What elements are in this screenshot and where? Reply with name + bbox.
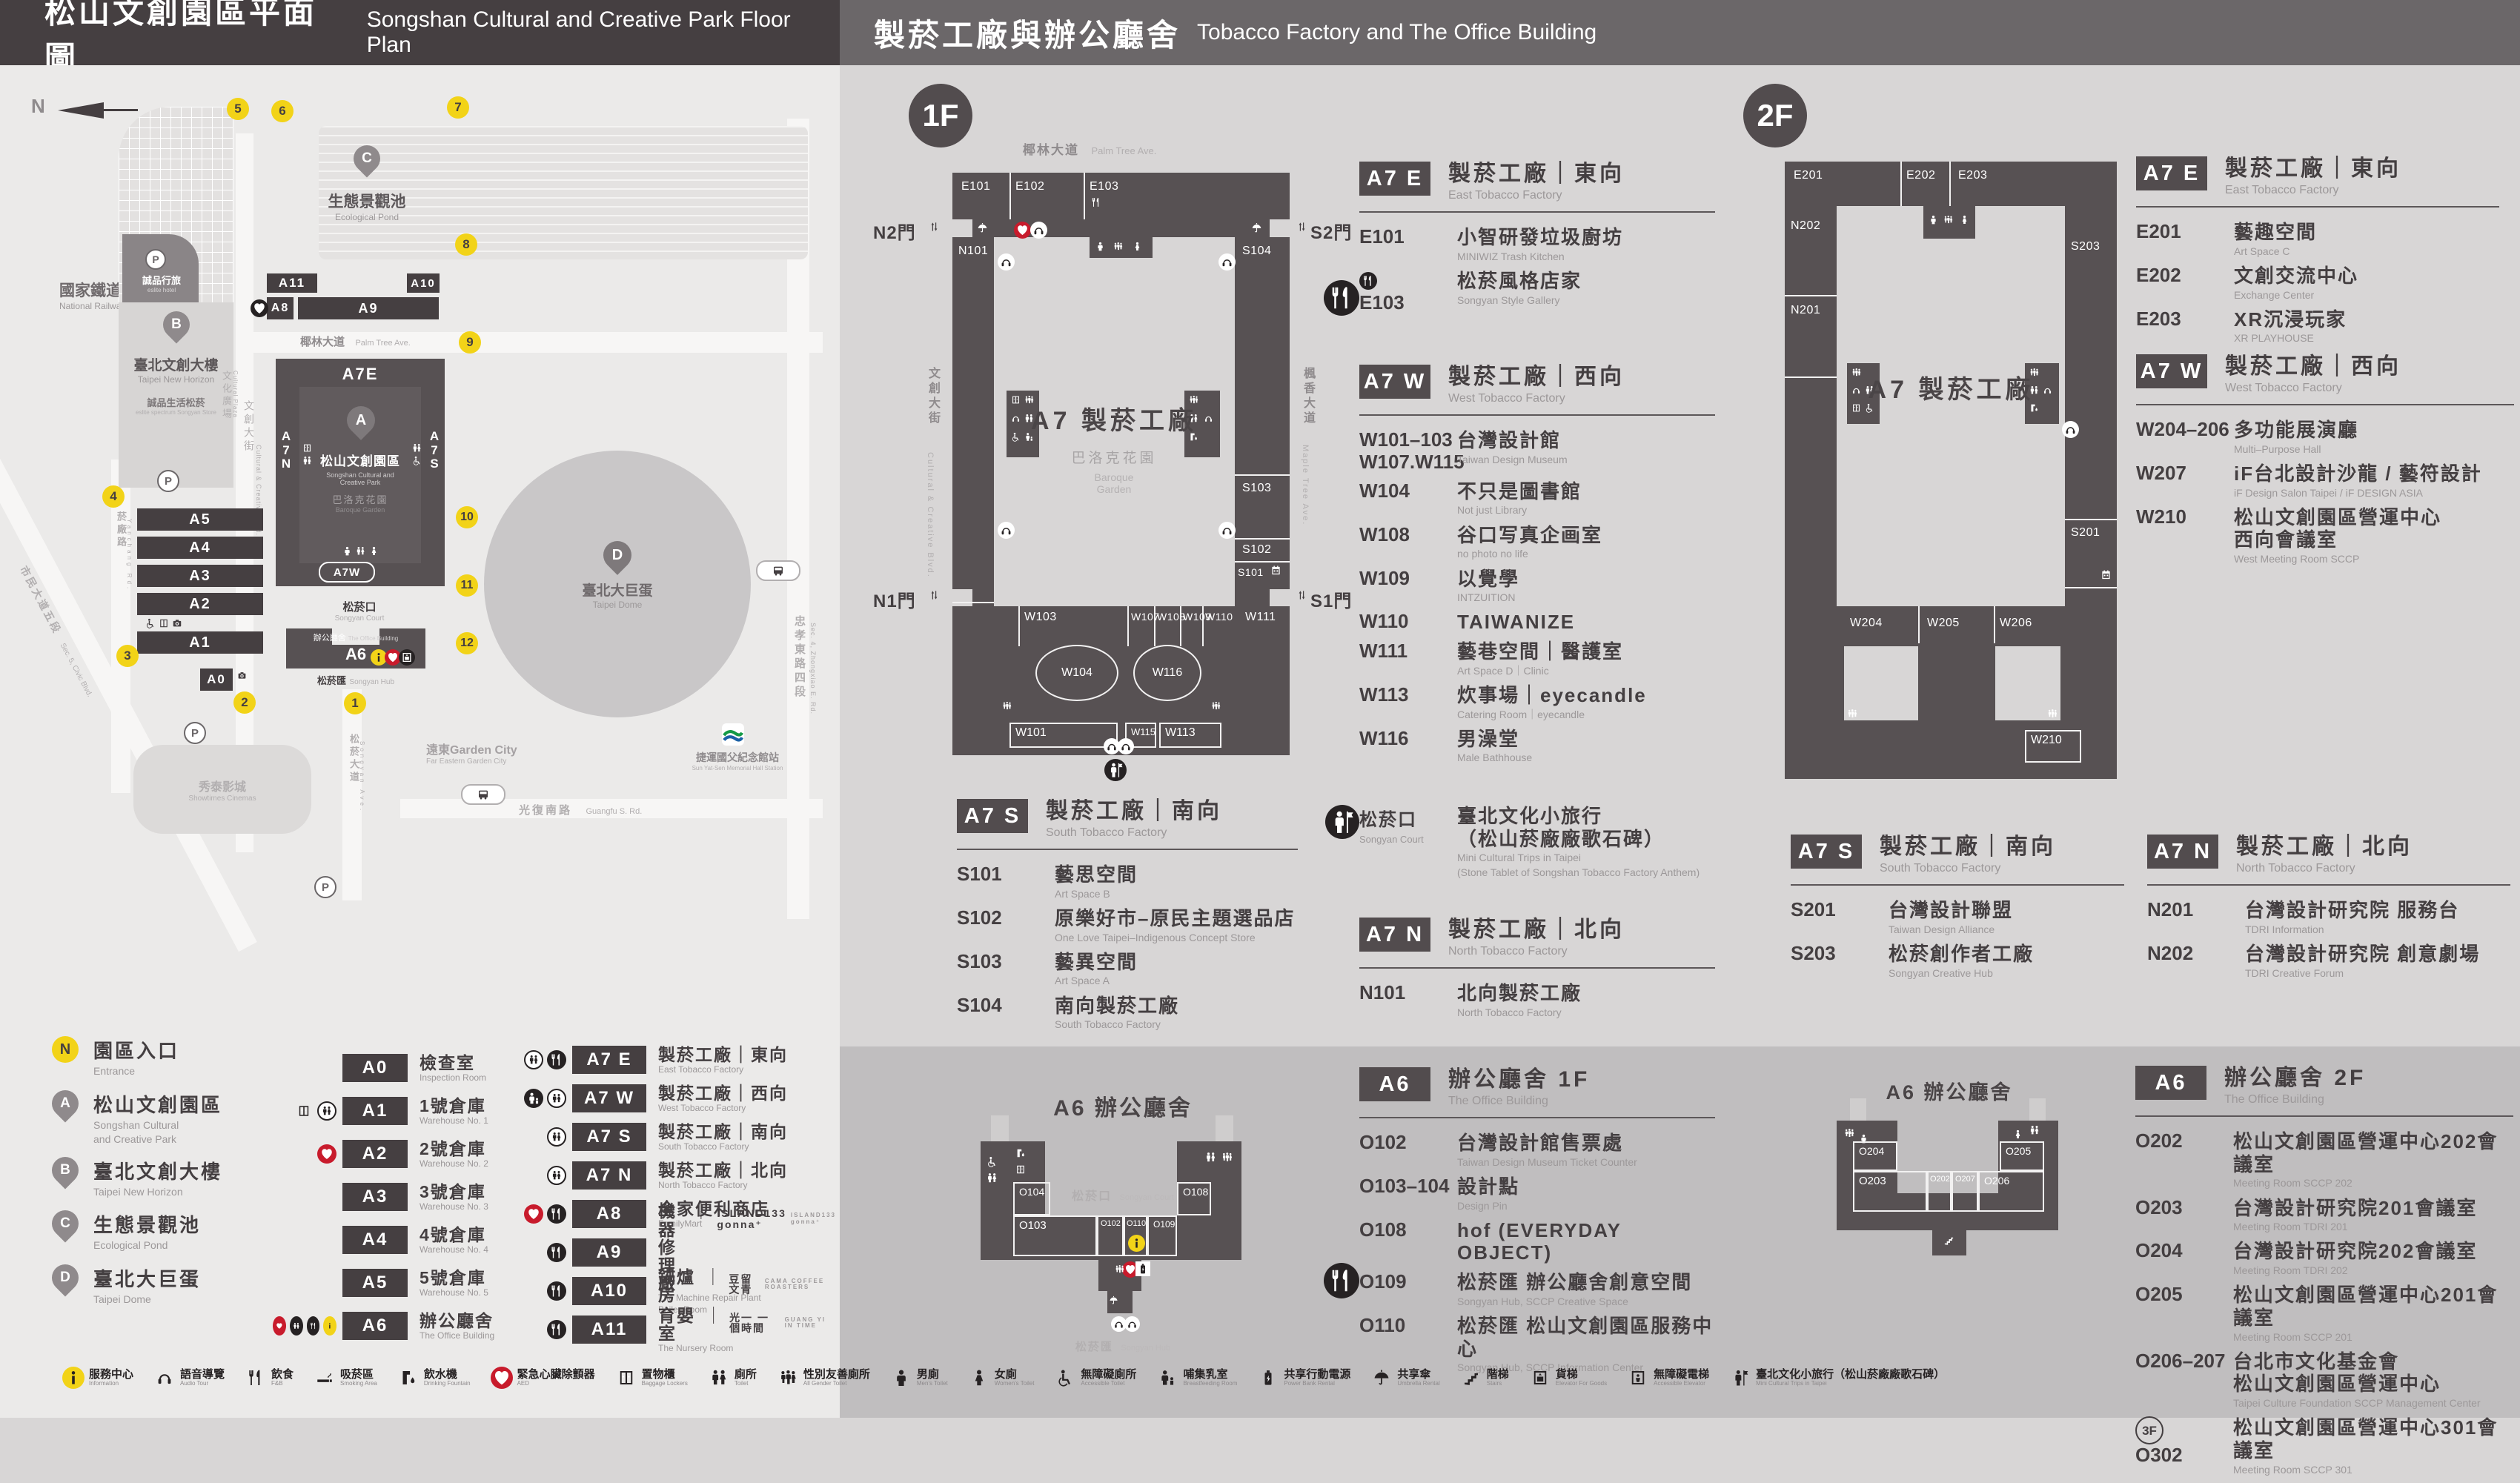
palm-ave-label: 椰林大道 Palm Tree Ave. — [300, 334, 411, 349]
room-w110: W110 — [1205, 611, 1233, 623]
list-item: W116 男澡堂 Male Bathhouse — [1359, 728, 1715, 765]
aed-icon — [524, 1204, 543, 1224]
list-item: S103 藝異空間 Art Space A — [957, 951, 1298, 988]
divider — [1084, 173, 1085, 219]
yanchang-en: Yanchang Rd. — [126, 519, 133, 591]
legend-venue: A11 育嬰室 ｜ 光一 一個時間 GUANG YI IN TIME The N… — [513, 1310, 836, 1349]
audio-tour-icon — [1118, 738, 1134, 754]
a6-1f-map-title: A6 辦公廳舍 — [1030, 1089, 1216, 1122]
bus-stop-icon — [756, 560, 800, 581]
room-w104: W104 — [1035, 645, 1118, 701]
section-badge: A7 N — [1359, 918, 1430, 952]
legend-building: A1 1號倉庫 Warehouse No. 1 — [273, 1089, 517, 1132]
all-gender-icon — [1115, 1264, 1124, 1274]
section-a6-1f: A6 辦公廳舍 1FThe Office Building O102 台灣設計館… — [1359, 1067, 1715, 1381]
audio-tour-icon — [2043, 385, 2052, 395]
section-f2-east: A7 E 製菸工廠｜東向East Tobacco Factory E201 藝趣… — [2136, 156, 2499, 352]
legend-facility: 緊急心臟除顫器 AED — [491, 1367, 595, 1389]
mens-icon — [1095, 242, 1105, 251]
divider — [1994, 606, 1995, 643]
womens-icon — [369, 546, 379, 556]
entrance-4: 4 — [102, 485, 125, 508]
nursing-icon — [1156, 1367, 1178, 1389]
room-e203: E203 — [1958, 169, 1987, 182]
section-badge: A7 S — [957, 799, 1028, 833]
toilet-icon — [547, 1127, 566, 1147]
food-icon — [307, 1316, 320, 1336]
mrt-label: 捷運國父紀念館站 Sun Yat-Sen Memorial Hall Stati… — [667, 750, 808, 772]
legend-venue: A9 機器修理廠 ｜ ISLAND133 gonna⁺ ISLAND133 go… — [513, 1233, 836, 1272]
aed-icon — [273, 1316, 286, 1336]
room-o204: O204 — [1853, 1141, 1897, 1171]
locker-icon — [302, 443, 312, 453]
map-hub-label: 松菸匯 Songyan Hub — [311, 673, 400, 688]
mrt-icon — [722, 723, 744, 746]
aed-icon — [317, 1144, 336, 1164]
section-badge: A7 N — [2147, 835, 2218, 869]
toilet-icon — [1865, 385, 1874, 395]
bldg-a3: A3 — [137, 565, 263, 587]
room-o104: O104 — [1013, 1182, 1050, 1215]
divider — [1949, 162, 1951, 206]
gate-s2: S2門 — [1310, 218, 1352, 244]
room-n202: N202 — [1791, 219, 1820, 233]
accessible-icon — [1011, 432, 1021, 442]
section-badge: A7 E — [2136, 156, 2207, 190]
room-o205: O205 — [2000, 1141, 2044, 1171]
fountain-icon — [1015, 1148, 1026, 1158]
room-w116: W116 — [1133, 645, 1201, 701]
legend-buildings: A0 檢查室 Inspection Room A1 1號倉庫 Warehouse… — [273, 1046, 517, 1347]
list-item: O206–207 台北市文化基金會 松山文創園區營運中心 Taipei Cult… — [2135, 1350, 2513, 1410]
section-f1-west: A7 W 製菸工廠｜西向West Tobacco Factory W101–10… — [1359, 365, 1715, 772]
food-icon — [547, 1243, 566, 1262]
divider — [1235, 561, 1290, 563]
toilet-icon — [524, 1050, 543, 1069]
toilet-icon — [708, 1367, 730, 1389]
section-f2-north: A7 N 製菸工廠｜北向North Tobacco Factory N201 台… — [2147, 835, 2510, 986]
divider — [1018, 606, 1020, 646]
room-w206: W206 — [2000, 617, 2032, 630]
accessible-icon — [412, 456, 422, 465]
list-item: O203 台灣設計研究院201會議室 Meeting Room TDRI 201 — [2135, 1197, 2513, 1234]
a6-2f-map-title: A6 辦公廳舍 — [1860, 1076, 2038, 1105]
list-item: O110 松菸匯 松山文創園區服務中心 Songyan Hub, SCCP In… — [1359, 1315, 1715, 1375]
info-icon — [323, 1316, 336, 1336]
entrance-8: 8 — [455, 233, 477, 256]
mens-icon — [1929, 215, 1938, 225]
room-n101: N101 — [958, 245, 988, 258]
legend-facility: 吸菸區 Smoking Area — [314, 1367, 377, 1389]
bldg-a2: A2 — [137, 593, 263, 615]
umbrella-icon — [977, 222, 988, 233]
map-court-label: 松菸口 Songyan Court — [319, 599, 400, 623]
food-icon — [245, 1367, 267, 1389]
toilet-icon — [290, 1316, 303, 1336]
entrance-12: 12 — [456, 632, 478, 654]
legend-facility: 男廁 Men's Toilet — [890, 1367, 948, 1389]
pin-b: B — [47, 1151, 84, 1189]
accessible-icon — [987, 1156, 998, 1167]
cultural-plaza-en: Cultural Plaza — [232, 371, 239, 418]
list-item: O205 松山文創園區營運中心201會議室 Meeting Room SCCP … — [2135, 1284, 2513, 1344]
locker-icon — [159, 618, 169, 628]
section-a6-2f: A6 辦公廳舍 2FThe Office Building O202 松山文創園… — [2135, 1066, 2513, 1483]
updown-arrows-icon — [1296, 221, 1307, 233]
divider — [1127, 606, 1129, 646]
locker-icon — [615, 1367, 637, 1389]
room-e202: E202 — [1906, 169, 1935, 182]
bldg-a8: A8 — [267, 297, 294, 319]
locker-icon — [1011, 395, 1021, 405]
legend-place: C 生態景觀池 Ecological Pond — [52, 1210, 274, 1254]
aed-icon — [1014, 222, 1031, 239]
floor1-badge: 1F — [909, 84, 972, 147]
north-label: N — [31, 95, 45, 118]
audio-tour-icon — [1218, 522, 1236, 539]
pin-d: D — [47, 1258, 84, 1296]
all-gender-icon — [1943, 215, 1953, 225]
entrance-10: 10 — [456, 506, 478, 528]
womens-icon — [968, 1367, 990, 1389]
a6f1-hub-label: 松菸匯 Songyan Hub — [1052, 1338, 1193, 1354]
list-item: O204 台灣設計研究院202會議室 Meeting Room TDRI 202 — [2135, 1240, 2513, 1277]
list-item: W210 松山文創園區營運中心 西向會議室 West Meeting Room … — [2136, 506, 2514, 566]
list-item: W110 TAIWANIZE — [1359, 611, 1715, 634]
legend-facility: 置物櫃 Baggage Lockers — [615, 1367, 688, 1389]
toilet-icon — [356, 546, 365, 556]
pond-label: 生態景觀池 Ecological Pond — [304, 190, 430, 222]
updown-arrows-icon — [928, 221, 940, 233]
divider — [1785, 376, 1837, 378]
entrance-marker: N — [52, 1036, 79, 1063]
legend-building: A4 4號倉庫 Warehouse No. 4 — [273, 1218, 517, 1261]
f1-gate-n2-gap — [952, 219, 972, 237]
divider — [1900, 162, 1902, 206]
divider — [1785, 295, 1837, 296]
f1-gate-s2-gap — [1270, 219, 1290, 237]
food-icon — [547, 1050, 566, 1069]
bldg-a1: A1 — [137, 631, 263, 654]
nursing-icon — [1024, 432, 1034, 442]
entrance-2: 2 — [233, 691, 256, 714]
list-item: O202 松山文創園區營運中心202會議室 Meeting Room SCCP … — [2135, 1130, 2513, 1190]
accessible-icon — [1054, 1367, 1076, 1389]
facility-legend: 服務中心 Information 語音導覽 Audio Tour 飲食 F&B … — [62, 1367, 1945, 1389]
food-icon — [1359, 272, 1377, 290]
map-park-label: 松山文創園區 Songshan Cultural and Creative Pa… — [294, 451, 427, 514]
bldg-a0: A0 — [200, 668, 233, 691]
entrance-9: 9 — [459, 331, 481, 354]
legend-facility: 階梯 Stairs — [1460, 1367, 1509, 1389]
room-s201: S201 — [2071, 526, 2100, 540]
header-left: 松山文創園區平面圖 Songshan Cultural and Creative… — [0, 0, 840, 65]
section-f1-north: A7 N 製菸工廠｜北向North Tobacco Factory N101 北… — [1359, 918, 1715, 1026]
f1-gate-n1-gap — [952, 589, 972, 606]
all-gender-icon — [1844, 1128, 1854, 1138]
pillar — [991, 1115, 1009, 1145]
legend-building: A6 辦公廳舍 The Office Building — [273, 1304, 517, 1347]
toilet-icon — [317, 1101, 336, 1121]
smoking-icon — [314, 1367, 336, 1389]
legend-facility: 哺集乳室 Breastfeeding Room — [1156, 1367, 1237, 1389]
tour-icon — [1104, 759, 1127, 781]
list-item: E101 小智研發垃圾廚坊 MINIWIZ Trash Kitchen — [1359, 226, 1715, 263]
divider — [1235, 474, 1290, 476]
legend-place: D 臺北大巨蛋 Taipei Dome — [52, 1264, 274, 1308]
locker-icon — [294, 1101, 314, 1121]
toilet-icon — [2029, 385, 2039, 395]
cinema-label: 秀泰影城 Showtimes Cinemas — [148, 777, 296, 803]
tour-icon — [1325, 805, 1359, 839]
ccb-label: 文創大街 — [242, 400, 256, 454]
legend-facility: 無障礙廁所 Accessible Toilet — [1054, 1367, 1136, 1389]
zhongxiao-label: 忠孝東路四段 — [792, 615, 807, 700]
legend-building: A0 檢查室 Inspection Room — [273, 1046, 517, 1089]
section-f2-south: A7 S 製菸工廠｜南向South Tobacco Factory S201 台… — [1791, 835, 2124, 986]
parking-icon: P — [157, 470, 179, 492]
legend-facility: 飲食 F&B — [245, 1367, 294, 1389]
audio-tour-icon — [1011, 414, 1021, 423]
songyan-ave-en: Songyan Ave. — [359, 741, 365, 813]
page-title-en: Songshan Cultural and Creative Park Floo… — [367, 7, 840, 58]
pin-a: A — [47, 1084, 84, 1122]
fountain-icon — [397, 1367, 420, 1389]
accessible-lift-icon — [1627, 1367, 1649, 1389]
room-o102: O102 — [1097, 1215, 1124, 1256]
all-gender-icon — [1189, 395, 1198, 405]
legend-facility: 共享行動電源 Power Bank Rental — [1257, 1367, 1350, 1389]
north-arrow-tail — [104, 109, 138, 111]
legend-place: A 松山文創園區 Songshan Cultural and Creative … — [52, 1090, 274, 1147]
room-e201: E201 — [1794, 169, 1823, 182]
gate-n2: N2門 — [873, 218, 916, 244]
pillar — [1216, 1115, 1233, 1145]
room-s104: S104 — [1242, 245, 1271, 258]
nursing-icon — [524, 1089, 543, 1108]
divider — [1918, 606, 1920, 643]
fountain-icon — [2029, 403, 2039, 413]
entrance-5: 5 — [227, 98, 249, 120]
aed-icon — [491, 1367, 513, 1389]
dome-label: 臺北大巨蛋 Taipei Dome — [558, 580, 677, 610]
list-item: W108 谷口写真企画室 no photo no life — [1359, 524, 1715, 561]
bldg-a9: A9 — [298, 297, 439, 319]
toilet-icon — [302, 456, 312, 465]
womens-icon — [1960, 215, 1969, 225]
calendar-icon — [2100, 569, 2112, 580]
list-item: S201 台灣設計聯盟 Taiwan Design Alliance — [1791, 899, 2124, 936]
a6f1-court-label: 松菸口 Songyan Court — [1052, 1186, 1193, 1204]
section-badge: A7 E — [1359, 162, 1430, 196]
legend-place: N 園區入口 Entrance — [52, 1036, 274, 1080]
entrance-7: 7 — [447, 96, 469, 119]
accessible-icon — [1865, 403, 1874, 413]
legend-facility: 性別友善廁所 All Gender Toilet — [777, 1367, 870, 1389]
list-item: W111 藝巷空間｜醫護室 Art Space D｜Clinic — [1359, 640, 1715, 677]
divider — [1009, 173, 1011, 219]
audio-tour-icon — [1851, 385, 1861, 395]
parking-icon: P — [314, 876, 336, 898]
section-f1-south: A7 S 製菸工廠｜南向South Tobacco Factory S101 藝… — [957, 799, 1298, 1038]
pin-c: C — [348, 140, 386, 178]
list-item: W204–206 多功能展演廳 Multi–Purpose Hall — [2136, 419, 2514, 456]
toilet-icon — [547, 1166, 566, 1185]
toilet-icon — [1024, 414, 1034, 423]
legend-venue: A10 鍋爐房 ｜ 豆留文青 CAMA COFFEE ROASTERS Boil… — [513, 1272, 836, 1310]
legend-facility: 語音導覽 Audio Tour — [153, 1367, 225, 1389]
all-gender-icon — [1113, 242, 1123, 251]
list-item: E203 XR沉浸玩家 XR PLAYHOUSE — [2136, 308, 2499, 345]
gate-s1: S1門 — [1310, 586, 1352, 612]
stairs-icon — [1460, 1367, 1482, 1389]
womens-icon — [2013, 1129, 2023, 1139]
toilet-icon — [547, 1089, 566, 1108]
map-a7s-label: A7S — [428, 430, 440, 471]
map-a7e-label: A7E — [276, 365, 445, 384]
all-gender-icon — [1221, 1152, 1233, 1163]
list-item: W101–103W107.W115 台灣設計館 Taiwan Design Mu… — [1359, 429, 1715, 474]
room-w210: W210 — [2025, 730, 2081, 763]
f1-street-top: 椰林大道 Palm Tree Ave. — [1023, 139, 1156, 158]
room-e101: E101 — [961, 180, 990, 193]
food-icon — [1324, 1263, 1359, 1298]
legend-venues: A7 E 製菸工廠｜東向 ｜ East Tobacco Factory A7 W… — [513, 1041, 836, 1349]
section-f1-east: A7 E 製菸工廠｜東向East Tobacco Factory E101 小智… — [1359, 162, 1715, 321]
entrance-6: 6 — [271, 100, 294, 122]
bldg-a5: A5 — [137, 508, 263, 531]
map-a7w-label: A7W — [319, 562, 375, 583]
eslite-hotel-label: 誠品行旅 eslite hotel — [125, 273, 199, 293]
mens-icon — [342, 546, 352, 556]
audio-tour-icon — [1030, 222, 1047, 239]
food-icon — [547, 1320, 566, 1339]
room-w107: W107 — [1131, 611, 1160, 623]
room-w108: W108 — [1157, 611, 1186, 623]
info-icon — [1128, 1235, 1145, 1252]
garden-city-label: 遠東Garden City Far Eastern Garden City — [426, 740, 517, 766]
room-o207: O207 — [1952, 1171, 1978, 1212]
north-arrow-icon — [58, 102, 104, 119]
entrance-11: 11 — [456, 574, 478, 597]
legend-building: A3 3號倉庫 Warehouse No. 3 — [273, 1175, 517, 1218]
f2-top-wing — [1785, 162, 2117, 206]
legend-facility: 臺北文化小旅行（松山菸廠廠歌石碑） Mini Cultural Trips in… — [1729, 1367, 1945, 1389]
cargo-lift-icon — [1529, 1367, 1551, 1389]
parking-icon: P — [184, 722, 206, 744]
room-w113: W113 — [1159, 723, 1221, 748]
all-gender-icon — [1847, 709, 1857, 719]
bldg-a11: A11 — [267, 273, 317, 293]
food-icon — [1091, 197, 1101, 208]
f1-street-left: 文創大街 — [924, 367, 941, 426]
power-bank-icon — [1135, 1261, 1150, 1276]
audio-tour-icon — [998, 253, 1015, 271]
f1-street-right: 楓香大道 — [1299, 367, 1316, 426]
legend-facility: 無障礙電梯 Accessible Elevator — [1627, 1367, 1709, 1389]
list-item: W207 iF台北設計沙龍 / 藝符設計 iF Design Salon Tai… — [2136, 462, 2514, 500]
legend-venue: A7 N 製菸工廠｜北向 ｜ North Tobacco Factory — [513, 1156, 836, 1195]
locker-icon — [1015, 1164, 1026, 1175]
toilet-icon — [2029, 1125, 2040, 1135]
legend-facility: 飲水機 Drinking Fountain — [397, 1367, 471, 1389]
section-title-en: Tobacco Factory and The Office Building — [1197, 20, 1596, 45]
list-item: E202 文創交流中心 Exchange Center — [2136, 265, 2499, 302]
list-item: E201 藝趣空間 Art Space C — [2136, 221, 2499, 258]
section-badge: A7 W — [1359, 365, 1430, 399]
umbrella-icon — [1370, 1367, 1393, 1389]
fountain-icon — [1189, 432, 1198, 442]
list-item: S203 松菸創作者工廠 Songyan Creative Hub — [1791, 943, 2124, 980]
umbrella-icon — [1251, 222, 1262, 233]
list-item: W109 以覺學 INTZUITION — [1359, 568, 1715, 605]
room-s101: S101 — [1238, 566, 1264, 578]
f1-bottom-wing — [952, 606, 1290, 755]
room-o206: O206 — [1978, 1171, 2044, 1212]
food-icon — [1324, 280, 1359, 316]
divider — [2065, 519, 2117, 520]
toilet-icon — [1205, 1152, 1216, 1163]
list-item: O103–104 設計點 Design Pin — [1359, 1175, 1715, 1212]
tour-icon — [1729, 1367, 1751, 1389]
room-o109: O109 — [1147, 1215, 1177, 1256]
list-item: S104 南向製菸工廠 South Tobacco Factory — [957, 995, 1298, 1032]
list-item: N201 台灣設計研究院 服務台 TDRI Information — [2147, 899, 2510, 936]
pin-a: A — [341, 400, 381, 440]
zhongxiao-en: Sec. 4, Zhongxiao E. Rd. — [809, 623, 817, 714]
all-gender-icon — [1024, 395, 1034, 405]
room-o202: O202 — [1927, 1171, 1952, 1212]
legend-place: B 臺北文創大樓 Taipei New Horizon — [52, 1157, 274, 1201]
divider — [952, 602, 994, 603]
calendar-icon — [1270, 565, 1281, 576]
all-gender-icon — [1002, 701, 1012, 711]
bldg-a4: A4 — [137, 537, 263, 559]
list-item: W113 炊事場｜eyecandle Catering Room｜eyecand… — [1359, 684, 1715, 721]
section-badge: A7 S — [1791, 835, 1862, 869]
list-item: S101 藝思空間 Art Space B — [957, 863, 1298, 900]
gate-n1: N1門 — [873, 586, 916, 612]
section-songyan-court: 松菸口 Songyan Court 臺北文化小旅行 （松山菸廠廠歌石碑） Min… — [1359, 805, 1730, 886]
court-title: 松菸口 — [1359, 805, 1457, 831]
room-o103: O103 — [1013, 1215, 1097, 1256]
womens-icon — [1133, 242, 1142, 251]
audio-tour-icon — [1124, 1316, 1140, 1332]
parking-icon: P — [145, 249, 166, 270]
floor2-badge: 2F — [1743, 84, 1807, 147]
room-w111: W111 — [1245, 611, 1276, 624]
legend-venue: A7 E 製菸工廠｜東向 ｜ East Tobacco Factory — [513, 1041, 836, 1079]
updown-arrows-icon — [928, 589, 940, 601]
food-icon — [547, 1281, 566, 1301]
legend-facility: 貨梯 Elevator For Goods — [1529, 1367, 1607, 1389]
entrance-3: 3 — [116, 645, 139, 667]
room-s103: S103 — [1242, 482, 1271, 495]
pin-d: D — [597, 535, 637, 575]
info-icon — [62, 1367, 84, 1389]
umbrella-icon — [1109, 1295, 1118, 1305]
bldg-a10: A10 — [407, 273, 440, 293]
legend-venue: A7 S 製菸工廠｜南向 ｜ South Tobacco Factory — [513, 1118, 836, 1156]
room-s203: S203 — [2071, 240, 2100, 253]
pillar — [1850, 1098, 1866, 1121]
toilet-icon — [1189, 414, 1198, 423]
list-item: O109 松菸匯 辦公廳舍創意空間 Songyan Hub, SCCP Crea… — [1359, 1271, 1715, 1308]
audio-tour-icon — [1204, 414, 1213, 423]
entrance-1: 1 — [344, 692, 366, 714]
guangfu-label: 光復南路 Guangfu S. Rd. — [519, 802, 642, 817]
room-n201: N201 — [1791, 304, 1820, 317]
